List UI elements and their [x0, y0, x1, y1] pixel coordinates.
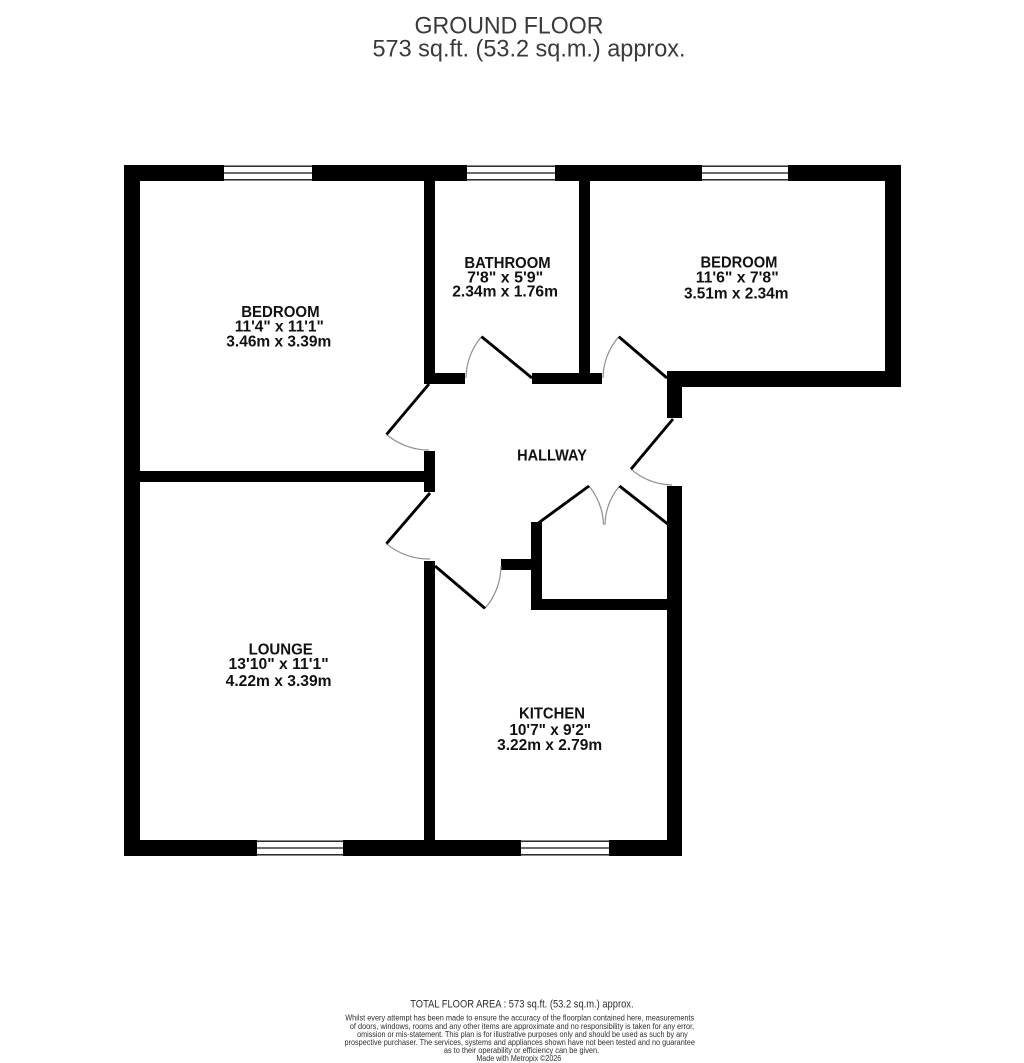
svg-text:573 sq.ft. (53.2 sq.m.) approx: 573 sq.ft. (53.2 sq.m.) approx.	[373, 36, 686, 63]
svg-text:3.22m x 2.79m: 3.22m x 2.79m	[497, 737, 602, 754]
svg-text:11'6" x 7'8": 11'6" x 7'8"	[696, 270, 779, 287]
svg-text:Made with Metropix ©2026: Made with Metropix ©2026	[476, 1054, 561, 1063]
svg-text:KITCHEN: KITCHEN	[519, 706, 585, 723]
svg-text:4.22m x 3.39m: 4.22m x 3.39m	[226, 673, 332, 690]
svg-text:2.34m x 1.76m: 2.34m x 1.76m	[452, 284, 558, 301]
svg-text:3.51m x 2.34m: 3.51m x 2.34m	[684, 286, 789, 303]
svg-text:TOTAL FLOOR AREA : 573 sq.ft.: TOTAL FLOOR AREA : 573 sq.ft. (53.2 sq.m…	[410, 999, 633, 1011]
svg-text:HALLWAY: HALLWAY	[517, 447, 587, 464]
svg-text:3.46m x 3.39m: 3.46m x 3.39m	[226, 334, 331, 351]
svg-text:13'10" x 11'1": 13'10" x 11'1"	[229, 656, 329, 673]
